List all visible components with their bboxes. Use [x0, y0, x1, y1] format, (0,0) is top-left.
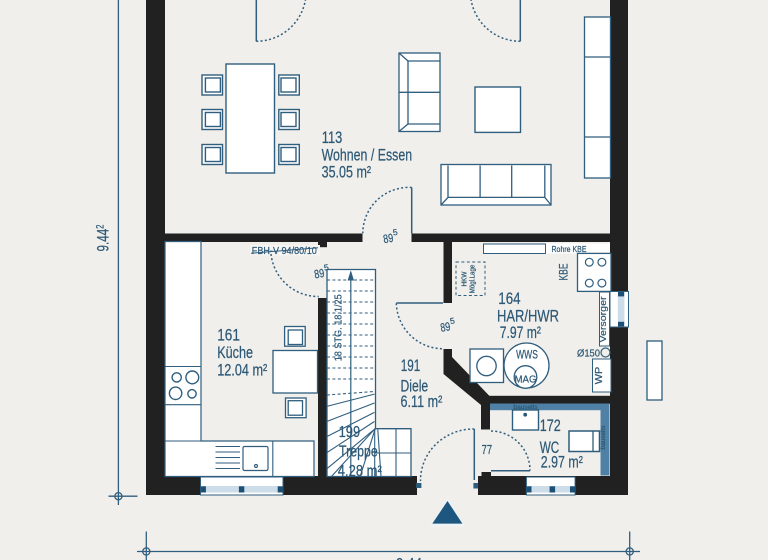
svg-text:7.97 m²: 7.97 m² [500, 324, 542, 342]
svg-text:113: 113 [322, 129, 343, 147]
svg-text:12.04 m²: 12.04 m² [217, 361, 267, 379]
svg-text:Versorger: Versorger [598, 297, 609, 343]
svg-text:FBH-V 94/80/10: FBH-V 94/80/10 [252, 246, 318, 257]
svg-text:199: 199 [339, 424, 361, 441]
svg-text:161: 161 [217, 326, 240, 344]
svg-text:172: 172 [540, 417, 561, 435]
svg-text:Rohre KBE: Rohre KBE [552, 244, 587, 254]
svg-text:MAG: MAG [515, 373, 537, 385]
svg-text:WP: WP [593, 367, 605, 385]
svg-text:4.28 m²: 4.28 m² [338, 463, 382, 480]
svg-text:Küche: Küche [217, 344, 253, 362]
svg-text:77: 77 [482, 443, 493, 457]
svg-text:WWS: WWS [516, 349, 538, 361]
svg-text:Ø150: Ø150 [577, 348, 600, 360]
svg-text:35.05 m²: 35.05 m² [322, 164, 372, 182]
svg-text:bauseits: bauseits [601, 426, 607, 450]
svg-text:6.11 m²: 6.11 m² [401, 393, 443, 411]
svg-text:2.97 m²: 2.97 m² [541, 454, 583, 472]
svg-text:Treppe: Treppe [339, 443, 378, 460]
svg-text:KBE: KBE [556, 264, 570, 281]
svg-text:bauseits: bauseits [514, 405, 538, 411]
svg-text:HAR/HWR: HAR/HWR [497, 308, 559, 326]
svg-text:HKW: HKW [462, 271, 469, 286]
svg-text:9.44: 9.44 [396, 556, 422, 560]
svg-text:191: 191 [401, 357, 421, 375]
svg-text:18 STG. 18.1/25: 18 STG. 18.1/25 [333, 294, 345, 361]
svg-text:164: 164 [498, 290, 520, 308]
svg-text:Mögl.Lage: Mögl.Lage [470, 265, 477, 294]
svg-text:Wohnen / Essen: Wohnen / Essen [322, 146, 413, 164]
